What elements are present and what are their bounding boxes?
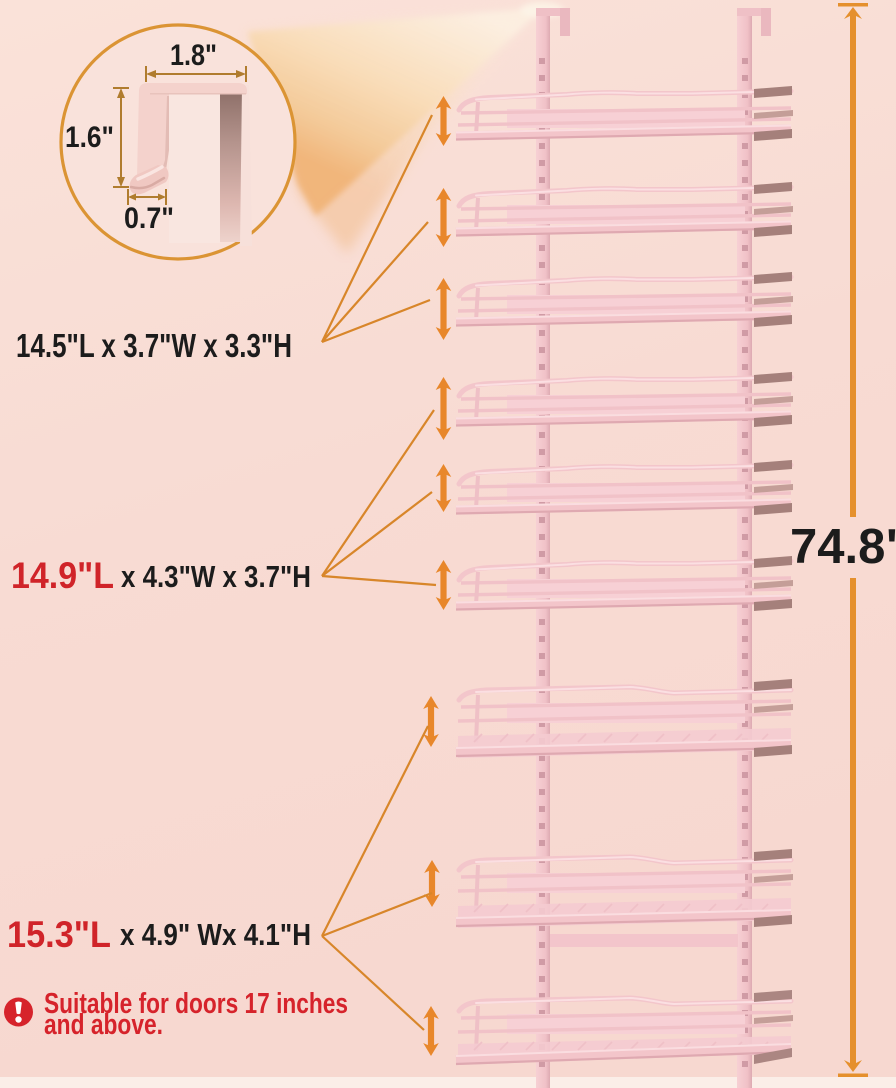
svg-text:14.9"L: 14.9"L [11,555,114,596]
svg-text:1.6": 1.6" [65,121,114,154]
svg-text:x 4.3"W x 3.7"H: x 4.3"W x 3.7"H [121,559,311,594]
svg-text:14.5"L x 3.7"W x 3.3"H: 14.5"L x 3.7"W x 3.3"H [16,327,292,364]
svg-text:74.8": 74.8" [790,520,896,574]
svg-text:15.3"L: 15.3"L [7,914,111,955]
svg-text:0.7": 0.7" [124,202,174,235]
svg-text:and above.: and above. [44,1009,163,1041]
svg-text:x 4.9" Wx 4.1"H: x 4.9" Wx 4.1"H [120,917,311,952]
svg-text:1.8": 1.8" [170,39,217,72]
